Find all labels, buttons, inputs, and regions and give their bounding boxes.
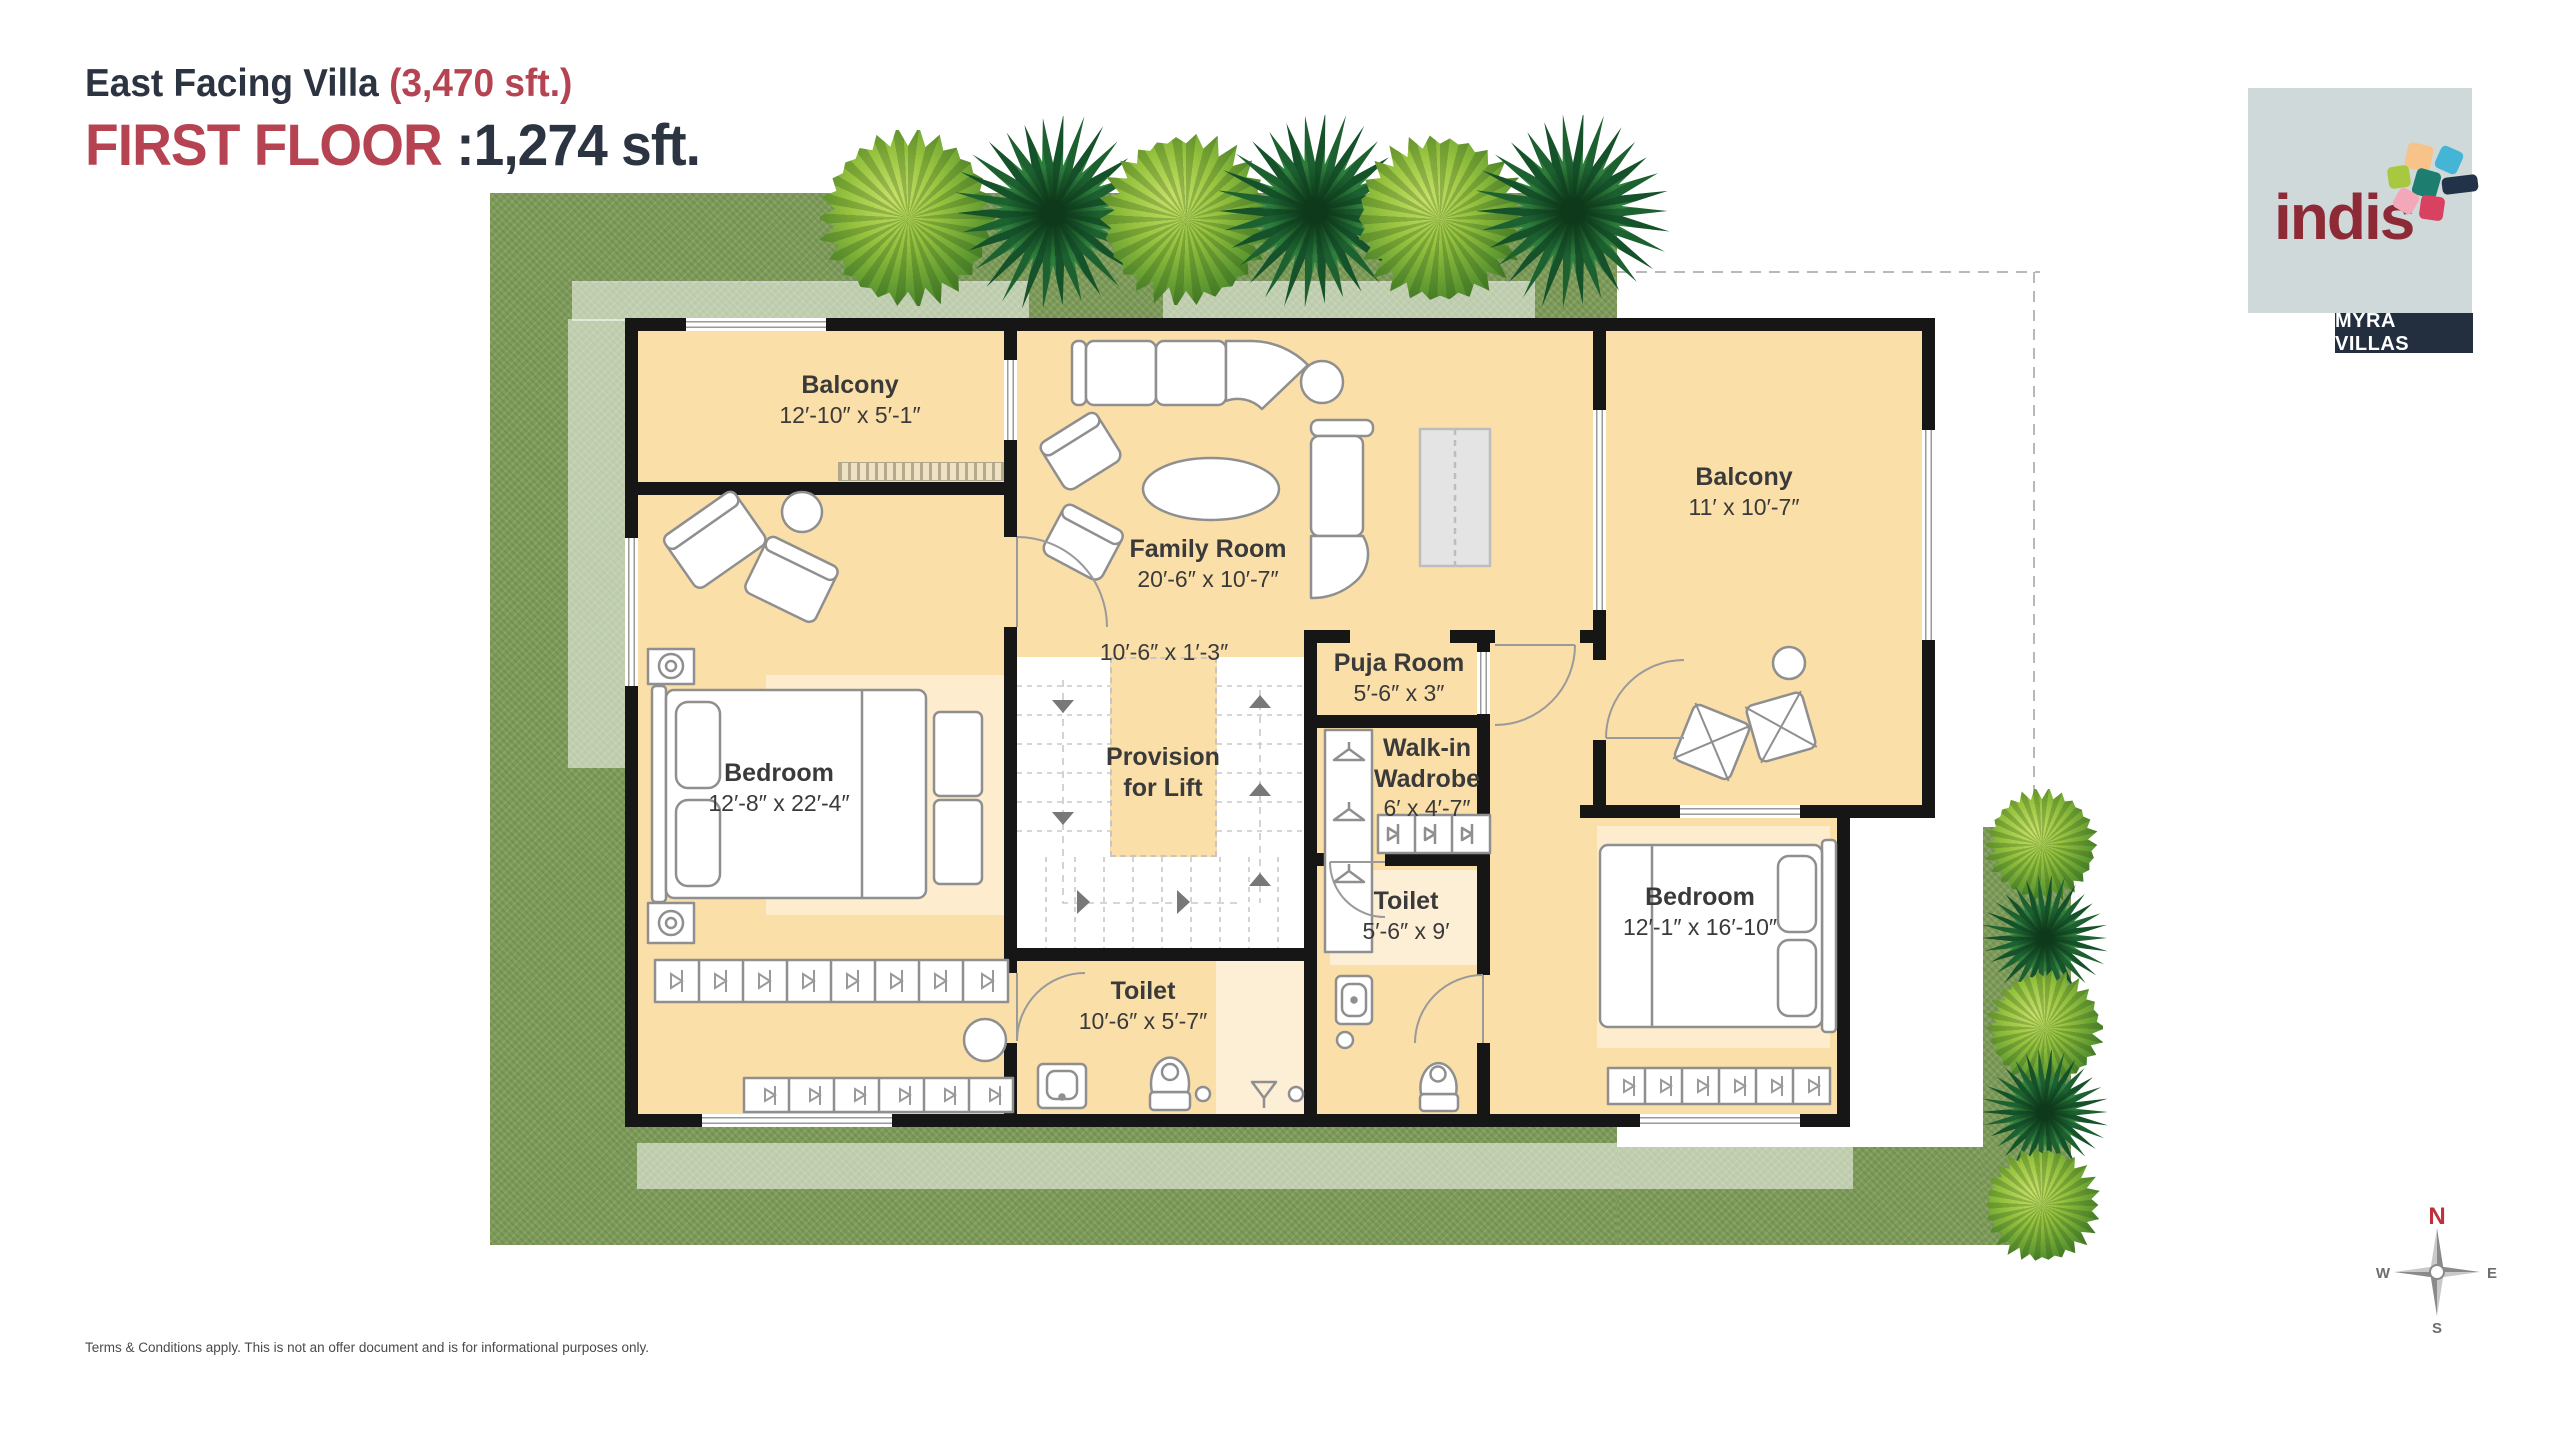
logo-asterisk-icon — [2441, 174, 2479, 195]
wall-a4 — [1004, 1043, 1017, 1127]
window — [1922, 430, 1935, 640]
wall-balcony-bedroom — [638, 482, 1004, 495]
logo-asterisk-icon — [2433, 144, 2465, 176]
wall-wardrobe-stub — [1317, 853, 1330, 866]
wall-c2 — [1477, 1043, 1490, 1114]
compass-w: W — [2376, 1265, 2391, 1282]
wall-family-balcony1 — [1593, 331, 1606, 410]
wall-a1 — [1004, 331, 1017, 360]
wall-a3 — [1004, 627, 1017, 973]
wall-family-stub3 — [1580, 630, 1593, 643]
room-label-family: Family Room20′-6″ x 10′-7″ — [1078, 534, 1338, 593]
compass-e: E — [2487, 1265, 2497, 1282]
site-overlay — [568, 319, 625, 768]
wall-family-stub1 — [1304, 630, 1350, 643]
wall-family-balcony2 — [1593, 610, 1606, 643]
site-overlay — [572, 281, 1029, 321]
room-label-bedroom-left: Bedroom12′-8″ x 22′-4″ — [669, 758, 889, 817]
room-label-puja: Puja Room5′-6″ x 3″ — [1314, 648, 1484, 707]
wall-bedroom-right — [1837, 805, 1850, 1127]
balcony-bench — [838, 462, 1008, 481]
wall-hall-balcony1 — [1593, 643, 1606, 660]
wall-puja-bottom — [1317, 715, 1477, 728]
window — [1593, 410, 1606, 610]
brand-logo: indis — [2248, 88, 2472, 313]
site-overlay — [637, 1143, 1853, 1189]
room-label-balcony-right: Balcony11′ x 10′-7″ — [1644, 462, 1844, 521]
logo-asterisk-icon — [2387, 165, 2412, 190]
project-badge: MYRA VILLAS — [2335, 313, 2473, 353]
wall-outer-left — [625, 318, 638, 1127]
villa-title: East Facing Villa (3,470 sft.) — [85, 62, 700, 106]
wall-hall-balcony2 — [1593, 740, 1606, 805]
villa-area: (3,470 sft.) — [389, 62, 572, 105]
room-label-balcony-left: Balcony12′-10″ x 5′-1″ — [730, 370, 970, 429]
window — [625, 538, 638, 686]
compass-rose: N E S W — [2376, 1203, 2497, 1337]
room-label-wardrobe: Walk-in Wadrobe6′ x 4′-7″ — [1357, 733, 1497, 822]
window — [1680, 805, 1800, 818]
room-label-toilet-left: Toilet10′-6″ x 5′-7″ — [1033, 976, 1253, 1035]
compass-s: S — [2432, 1320, 2442, 1337]
disclaimer-text: Terms & Conditions apply. This is not an… — [85, 1340, 649, 1355]
wall-a2 — [1004, 440, 1017, 537]
page-header: East Facing Villa (3,470 sft.) FIRST FLO… — [85, 62, 700, 179]
wall-wardrobe-bottom — [1385, 853, 1477, 866]
floor-plan-page: N E S W Balcony12′-10″ x 5′-1″ Family Ro… — [0, 0, 2560, 1440]
window — [686, 318, 826, 331]
window — [1640, 1114, 1800, 1127]
window — [1004, 360, 1017, 440]
room-label-corridor: 10′-6″ x 1′-3″ — [1044, 638, 1284, 666]
compass-n: N — [2428, 1203, 2445, 1230]
site-overlay — [1871, 281, 2020, 319]
window — [702, 1114, 892, 1127]
room-label-lift: Provision for Lift — [1093, 742, 1233, 803]
room-label-toilet-right: Toilet5′-6″ x 9′ — [1326, 886, 1486, 945]
wall-stair-bottom — [1004, 948, 1317, 961]
logo-asterisk-icon — [2418, 194, 2445, 221]
brand-name: indis — [2274, 180, 2413, 254]
floor-title: FIRST FLOOR :1,274 sft. — [85, 112, 700, 179]
room-label-bedroom-right: Bedroom12′-1″ x 16′-10″ — [1585, 882, 1815, 941]
wall-family-stub2 — [1450, 630, 1495, 643]
